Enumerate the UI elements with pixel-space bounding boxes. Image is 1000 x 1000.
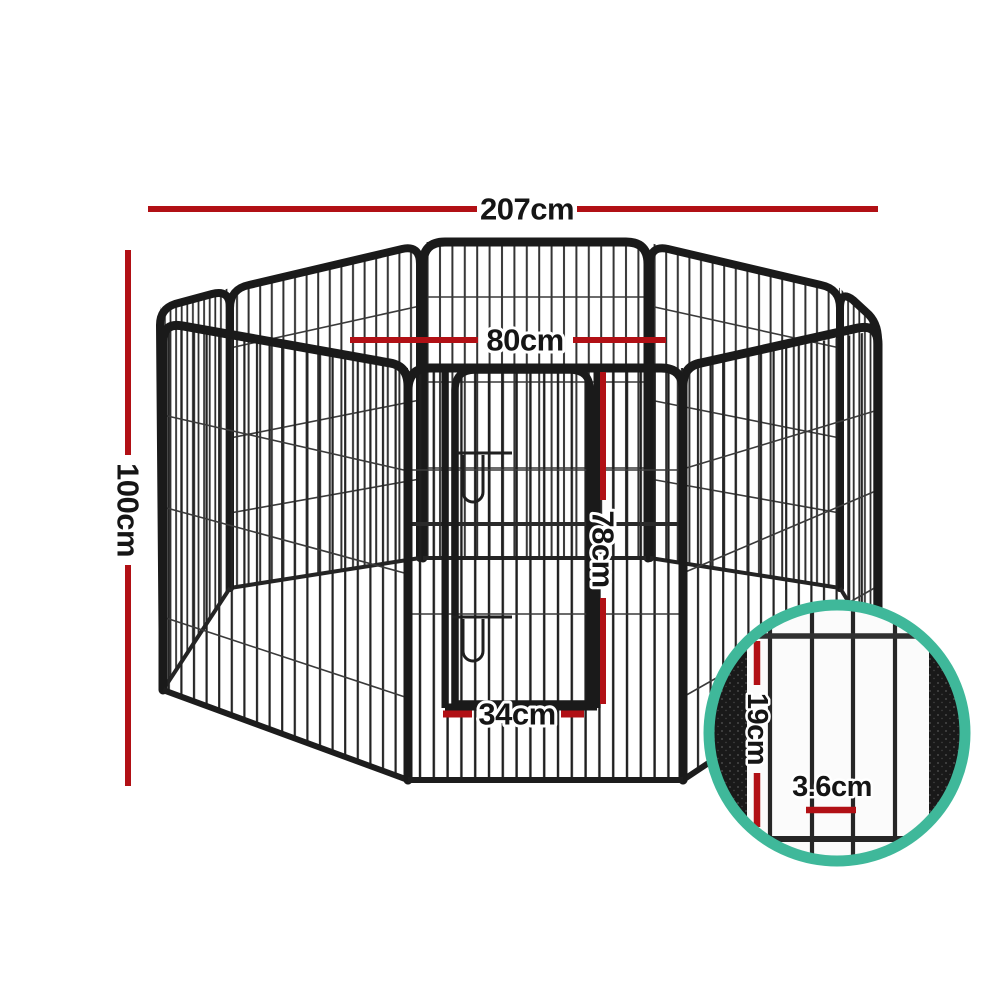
dimension-label: 207cm bbox=[480, 192, 574, 227]
dimension-overall-height: 100cm bbox=[111, 250, 146, 786]
panel-front-left bbox=[163, 324, 408, 780]
playpen-product-image: 207cm 100cm 80cm 78cm 34cm bbox=[0, 0, 1000, 1000]
dimension-label: 3.6cm bbox=[792, 771, 872, 803]
product-image-canvas: 207cm 100cm 80cm 78cm 34cm bbox=[0, 0, 1000, 1000]
dimension-overall-width: 207cm bbox=[148, 192, 878, 227]
panel-mesh bbox=[163, 324, 408, 780]
dimension-label: 34cm bbox=[478, 697, 555, 732]
dimension-label: 100cm bbox=[111, 463, 146, 557]
dimension-label: 78cm bbox=[586, 510, 621, 587]
dimension-label: 19cm bbox=[741, 693, 773, 765]
dimension-label: 80cm bbox=[486, 323, 563, 358]
